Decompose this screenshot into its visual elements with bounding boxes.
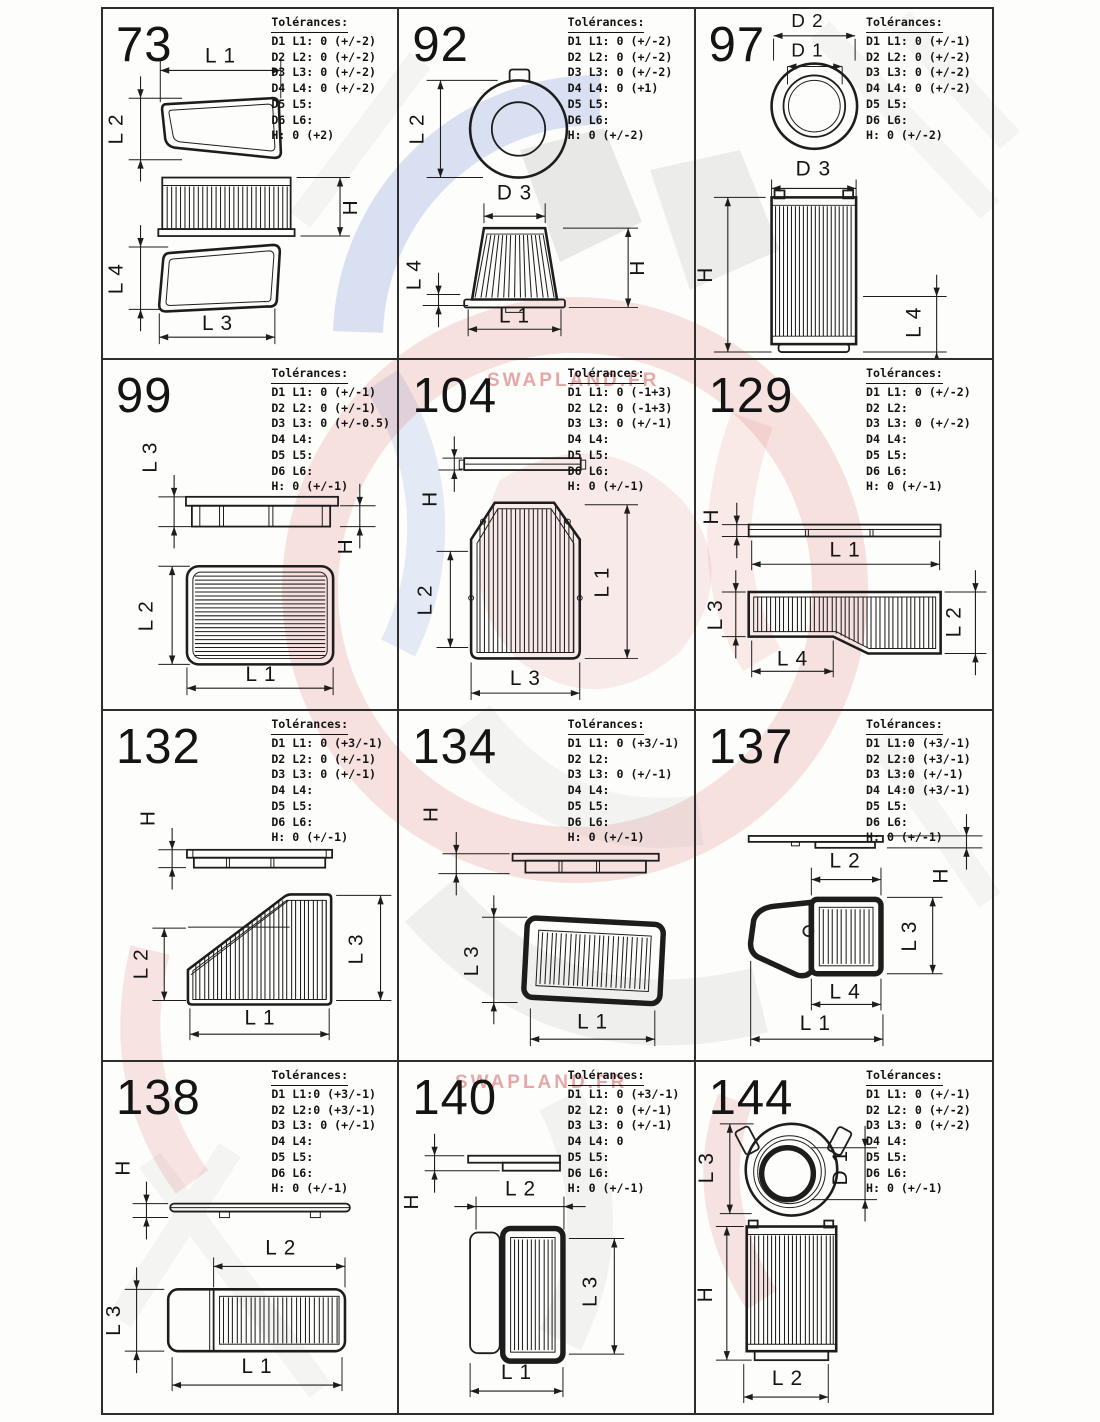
- dim-label-l3: L 3: [345, 933, 368, 964]
- tolerance-block: Tolérances: D1 L1: 0 (-1+3) D2 L2: 0 (-1…: [568, 366, 690, 495]
- tolerance-block: Tolérances: D1 L1: 0 (+/-1) D2 L2: 0 (+/…: [271, 366, 393, 495]
- tolerance-line: D1 L1: 0 (+/-1): [866, 34, 988, 50]
- dim-label-l4: L 4: [777, 647, 808, 670]
- panel-138: H L 2 L 3 L 1 138 Tolérances: D1 L1:0 (+…: [103, 1062, 399, 1413]
- dim-label-l4: L 4: [105, 263, 128, 294]
- dim-label-l1: L 1: [205, 45, 236, 68]
- tolerance-line: D6 L6:: [271, 113, 393, 129]
- part-number: 73: [116, 21, 173, 70]
- tolerance-block: Tolérances: D1 L1:0 (+3/-1) D2 L2:0 (+3/…: [866, 717, 988, 846]
- filter-views: [513, 854, 664, 1004]
- panel-99: L 3 H L 2 L 1 99 Tolérances: D1 L1: 0 (+…: [103, 360, 399, 711]
- tolerance-line: D2 L2: 0 (+/-2): [568, 50, 690, 66]
- dim-label-h: H: [420, 806, 443, 822]
- dimension-lines: [750, 814, 982, 1046]
- tolerance-line: H: 0 (+/-1): [568, 1181, 690, 1197]
- tolerance-line: D4 L4: 0 (+/-2): [866, 81, 988, 97]
- dim-label-l1: L 1: [577, 1010, 608, 1033]
- dim-label-l1: L 1: [501, 1361, 532, 1384]
- dim-label-d3: D 3: [795, 158, 830, 181]
- dim-label-l4: L 4: [403, 259, 426, 290]
- dim-label-l1: L 1: [799, 1012, 830, 1035]
- panel-144: L 3 D 1 H L 2 144 Tolérances: D1 L1: 0 (…: [696, 1062, 992, 1413]
- panel-97: D 2 D 1 D 3 H L 4 97 Tolérances: D1 L1: …: [696, 9, 992, 360]
- dim-label-l3: L 3: [696, 1152, 718, 1183]
- tolerance-line: D1 L1: 0 (+/-2): [271, 34, 393, 50]
- filter-views: [771, 64, 857, 353]
- tolerance-line: H: 0 (+/-2): [866, 128, 988, 144]
- dim-label-l1: L 1: [499, 304, 530, 327]
- part-number: 92: [412, 21, 469, 70]
- dim-label-h: H: [929, 868, 952, 884]
- tolerance-line: D3 L3: 0 (+/-2): [866, 1118, 988, 1134]
- dim-label-h: H: [136, 810, 159, 826]
- tolerance-line: D1 L1: 0 (+3/-1): [271, 736, 393, 752]
- panel-129: H L 1 L 3 L 2 L 4 129 Tolérances: D1 L1:…: [696, 360, 992, 711]
- tolerance-line: D5 L5:: [271, 97, 393, 113]
- tolerance-line: D6 L6:: [866, 464, 988, 480]
- tolerance-title: Tolérances:: [568, 366, 645, 384]
- tolerance-line: D3 L3: 0 (+/-1): [568, 416, 690, 432]
- tolerance-line: D4 L4:: [568, 783, 690, 799]
- tolerance-line: D4 L4:: [271, 1134, 393, 1150]
- tolerance-line: D4 L4:: [866, 432, 988, 448]
- tolerance-line: D4 L4:: [568, 432, 690, 448]
- panel-92: L 2 D 3 H L 4 L 1 92 Tolérances: D1 L1: …: [399, 9, 695, 360]
- tolerance-line: H: 0 (+/-1): [568, 479, 690, 495]
- tolerance-line: H: 0 (+/-2): [568, 128, 690, 144]
- dim-label-d1: D 1: [829, 1150, 852, 1186]
- part-number: 140: [412, 1074, 497, 1123]
- tolerance-line: D2 L2: 0 (+/-2): [271, 50, 393, 66]
- dim-label-l2: L 2: [406, 113, 429, 144]
- tolerance-line: H: 0 (+/-1): [866, 479, 988, 495]
- tolerance-line: D2 L2: 0 (+/-2): [866, 50, 988, 66]
- panel-140: H L 2 L 3 L 1 140 Tolérances: D1 L1: 0 (…: [399, 1062, 695, 1413]
- tolerance-line: D5 L5:: [271, 1150, 393, 1166]
- tolerance-line: H: 0 (+/-1): [866, 1181, 988, 1197]
- dim-label-h: H: [696, 267, 717, 283]
- tolerance-line: H: 0 (+2): [271, 128, 393, 144]
- tolerance-line: D4 L4:0 (+3/-1): [866, 783, 988, 799]
- tolerance-line: D6 L6:: [866, 815, 988, 831]
- tolerance-line: D5 L5:: [271, 799, 393, 815]
- dimension-lines: [439, 832, 655, 1046]
- dim-label-d2: D 2: [791, 10, 823, 31]
- panel-137: H L 2 L 3 L 4 L 1 137 Tolérances: D1 L1:…: [696, 711, 992, 1062]
- filter-views: [187, 850, 332, 1005]
- tolerance-block: Tolérances: D1 L1: 0 (+/-2) D2 L2: D3 L3…: [866, 366, 988, 495]
- tolerance-line: D1 L1: 0 (+3/-1): [568, 1087, 690, 1103]
- tolerance-line: D3 L3: 0 (+/-2): [866, 65, 988, 81]
- dim-label-h: H: [626, 260, 649, 276]
- tolerance-title: Tolérances:: [568, 15, 645, 33]
- tolerance-line: D3 L3: 0 (+/-1): [271, 1118, 393, 1134]
- tolerance-line: D5 L5:: [271, 448, 393, 464]
- tolerance-line: D3 L3: 0 (+/-1): [271, 767, 393, 783]
- tolerance-line: D1 L1:0 (+3/-1): [866, 736, 988, 752]
- tolerance-line: D5 L5:: [568, 448, 690, 464]
- dim-label-l2: L 2: [134, 600, 157, 631]
- tolerance-line: D4 L4:: [271, 783, 393, 799]
- part-number: 138: [116, 1074, 201, 1123]
- part-number: 129: [709, 372, 794, 421]
- dim-label-l1: L 1: [245, 1006, 276, 1029]
- dim-label-l1: L 1: [591, 567, 614, 598]
- part-number: 144: [709, 1074, 794, 1123]
- dim-label-l2: L 2: [414, 584, 437, 615]
- tolerance-line: D1 L1: 0 (+/-1): [866, 1087, 988, 1103]
- tolerance-title: Tolérances:: [568, 717, 645, 735]
- filter-views: [186, 497, 338, 665]
- part-number: 132: [116, 723, 201, 772]
- panel-132: H L 2 L 3 L 1 132 Tolérances: D1 L1: 0 (…: [103, 711, 399, 1062]
- part-number: 99: [116, 372, 173, 421]
- tolerance-line: D3 L3: 0 (+/-2): [866, 416, 988, 432]
- tolerance-line: D2 L2: 0 (+/-2): [866, 1103, 988, 1119]
- dim-label-d1: D 1: [791, 40, 823, 61]
- dim-label-h: H: [400, 1194, 423, 1210]
- filter-spec-grid: L 1 L 2 H L 4 L 3 73 Tolérances: D1 L1: …: [101, 7, 994, 1415]
- tolerance-block: Tolérances: D1 L1: 0 (+/-2) D2 L2: 0 (+/…: [271, 15, 393, 144]
- dim-label-l2: L 2: [772, 1367, 803, 1390]
- dim-label-h: H: [112, 1160, 135, 1176]
- filter-views: [168, 1204, 350, 1352]
- tolerance-line: D1 L1: 0 (+/-2): [866, 385, 988, 401]
- dim-label-h: H: [334, 538, 357, 554]
- tolerance-block: Tolérances: D1 L1:0 (+3/-1) D2 L2:0 (+3/…: [271, 1068, 393, 1197]
- part-number: 134: [412, 723, 497, 772]
- tolerance-line: D1 L1: 0 (-1+3): [568, 385, 690, 401]
- dim-label-l1: L 1: [829, 538, 860, 561]
- tolerance-title: Tolérances:: [271, 717, 348, 735]
- tolerance-line: H: 0 (+/-1): [271, 1181, 393, 1197]
- part-number: 137: [709, 723, 794, 772]
- tolerance-line: D5 L5:: [866, 799, 988, 815]
- dim-label-l4: L 4: [829, 981, 860, 1004]
- tolerance-title: Tolérances:: [866, 366, 943, 384]
- tolerance-line: D3 L3: 0 (+/-1): [568, 767, 690, 783]
- dim-label-l2: L 2: [105, 113, 128, 144]
- dim-label-l3: L 3: [703, 599, 726, 630]
- tolerance-line: H: 0 (+/-1): [866, 830, 988, 846]
- tolerance-line: D3 L3: 0 (+/-2): [271, 65, 393, 81]
- dim-label-l2: L 2: [942, 606, 965, 637]
- dim-label-l1: L 1: [246, 663, 277, 686]
- tolerance-line: D4 L4: 0 (+/-2): [271, 81, 393, 97]
- dim-label-l2: L 2: [129, 948, 152, 979]
- part-number: 97: [709, 21, 766, 70]
- dim-label-l3: L 3: [103, 1305, 125, 1336]
- tolerance-line: H: 0 (+/-1): [271, 830, 393, 846]
- tolerance-title: Tolérances:: [271, 15, 348, 33]
- tolerance-title: Tolérances:: [271, 366, 348, 384]
- dim-label-l3: L 3: [510, 667, 541, 690]
- dim-label-d3: D 3: [497, 181, 532, 204]
- tolerance-line: D5 L5:: [866, 448, 988, 464]
- tolerance-block: Tolérances: D1 L1: 0 (+/-2) D2 L2: 0 (+/…: [568, 15, 690, 144]
- tolerance-line: D3 L3: 0 (+/-2): [568, 65, 690, 81]
- dim-label-h: H: [696, 1286, 717, 1302]
- tolerance-line: D6 L6:: [568, 1166, 690, 1182]
- tolerance-line: D3 L3:0 (+/-1): [866, 767, 988, 783]
- tolerance-line: D6 L6:: [866, 113, 988, 129]
- tolerance-line: D6 L6:: [568, 113, 690, 129]
- tolerance-line: D6 L6:: [568, 464, 690, 480]
- dim-label-l2: L 2: [505, 1178, 536, 1201]
- tolerance-block: Tolérances: D1 L1: 0 (+3/-1) D2 L2: 0 (+…: [271, 717, 393, 846]
- tolerance-line: D6 L6:: [866, 1166, 988, 1182]
- dim-label-h: H: [339, 199, 362, 215]
- tolerance-line: D2 L2:0 (+3/-1): [866, 752, 988, 768]
- tolerance-line: D6 L6:: [271, 1166, 393, 1182]
- dim-label-l3: L 3: [579, 1276, 602, 1307]
- tolerance-line: D2 L2:: [866, 401, 988, 417]
- tolerance-block: Tolérances: D1 L1: 0 (+/-1) D2 L2: 0 (+/…: [866, 15, 988, 144]
- tolerance-line: D4 L4:: [271, 432, 393, 448]
- tolerance-line: D3 L3: 0 (+/-0.5): [271, 416, 393, 432]
- tolerance-line: D1 L1: 0 (+3/-1): [568, 736, 690, 752]
- tolerance-line: D1 L1: 0 (+/-2): [568, 34, 690, 50]
- dim-label-h: H: [700, 509, 723, 525]
- tolerance-line: H: 0 (+/-1): [568, 830, 690, 846]
- dim-label-l3: L 3: [138, 442, 161, 473]
- panel-73: L 1 L 2 H L 4 L 3 73 Tolérances: D1 L1: …: [103, 9, 399, 360]
- spec-sheet-page: SWAPLAND.FR SWAPLAND.FR: [0, 0, 1100, 1422]
- dimension-lines: [722, 503, 987, 678]
- tolerance-line: D4 L4: 0: [568, 1134, 690, 1150]
- tolerance-title: Tolérances:: [866, 1068, 943, 1086]
- tolerance-line: D5 L5:: [568, 97, 690, 113]
- tolerance-line: D2 L2:: [568, 752, 690, 768]
- dim-label-l3: L 3: [460, 945, 483, 976]
- tolerance-line: D5 L5:: [568, 799, 690, 815]
- panel-104: H L 2 L 1 L 3 104 Tolérances: D1 L1: 0 (…: [399, 360, 695, 711]
- tolerance-line: D1 L1: 0 (+/-1): [271, 385, 393, 401]
- dimension-lines: [125, 1182, 345, 1391]
- tolerance-title: Tolérances:: [568, 1068, 645, 1086]
- part-number: 104: [412, 372, 497, 421]
- tolerance-line: D2 L2: 0 (-1+3): [568, 401, 690, 417]
- tolerance-title: Tolérances:: [866, 717, 943, 735]
- dim-label-l2: L 2: [829, 850, 860, 873]
- panel-134: H L 3 L 1 134 Tolérances: D1 L1: 0 (+3/-…: [399, 711, 695, 1062]
- tolerance-line: D5 L5:: [568, 1150, 690, 1166]
- filter-views: [748, 836, 882, 976]
- tolerance-line: D6 L6:: [568, 815, 690, 831]
- dim-label-l1: L 1: [242, 1355, 273, 1378]
- tolerance-block: Tolérances: D1 L1: 0 (+3/-1) D2 L2: D3 L…: [568, 717, 690, 846]
- dim-label-h: H: [419, 491, 442, 507]
- tolerance-line: D6 L6:: [271, 464, 393, 480]
- dim-label-l3: L 3: [202, 312, 233, 335]
- tolerance-line: D6 L6:: [271, 815, 393, 831]
- tolerance-line: D2 L2: 0 (+/-1): [271, 401, 393, 417]
- tolerance-line: H: 0 (+/-1): [271, 479, 393, 495]
- tolerance-title: Tolérances:: [271, 1068, 348, 1086]
- tolerance-line: D4 L4: 0 (+1): [568, 81, 690, 97]
- dim-label-l3: L 3: [897, 920, 920, 951]
- tolerance-line: D2 L2: 0 (+/-1): [568, 1103, 690, 1119]
- dim-label-l2: L 2: [265, 1236, 296, 1259]
- tolerance-line: D1 L1:0 (+3/-1): [271, 1087, 393, 1103]
- tolerance-line: D2 L2: 0 (+/-1): [271, 752, 393, 768]
- tolerance-block: Tolérances: D1 L1: 0 (+3/-1) D2 L2: 0 (+…: [568, 1068, 690, 1197]
- tolerance-line: D4 L4:: [866, 1134, 988, 1150]
- tolerance-line: D2 L2:0 (+3/-1): [271, 1103, 393, 1119]
- tolerance-line: D3 L3: 0 (+/-1): [568, 1118, 690, 1134]
- dim-label-l4: L 4: [902, 307, 925, 338]
- tolerance-title: Tolérances:: [866, 15, 943, 33]
- tolerance-line: D5 L5:: [866, 1150, 988, 1166]
- tolerance-line: D5 L5:: [866, 97, 988, 113]
- tolerance-block: Tolérances: D1 L1: 0 (+/-1) D2 L2: 0 (+/…: [866, 1068, 988, 1197]
